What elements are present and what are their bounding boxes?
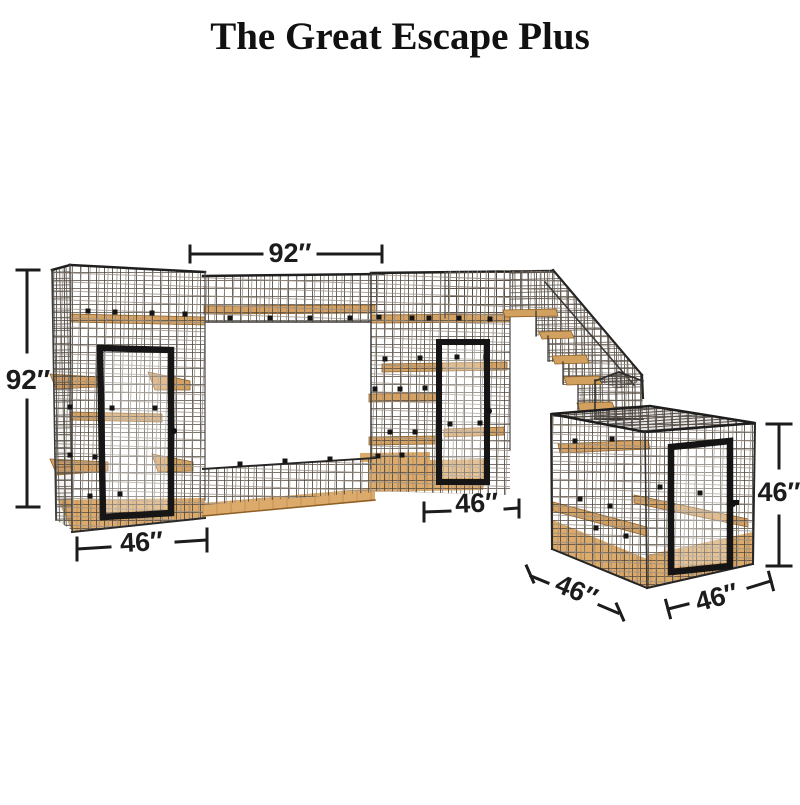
svg-text:The Great Escape Plus: The Great Escape Plus: [210, 15, 590, 58]
svg-text:92″: 92″: [6, 364, 51, 395]
svg-text:92″: 92″: [269, 238, 312, 268]
svg-text:46″: 46″: [119, 526, 164, 558]
svg-text:46″: 46″: [455, 487, 499, 518]
svg-text:46″: 46″: [758, 477, 800, 507]
